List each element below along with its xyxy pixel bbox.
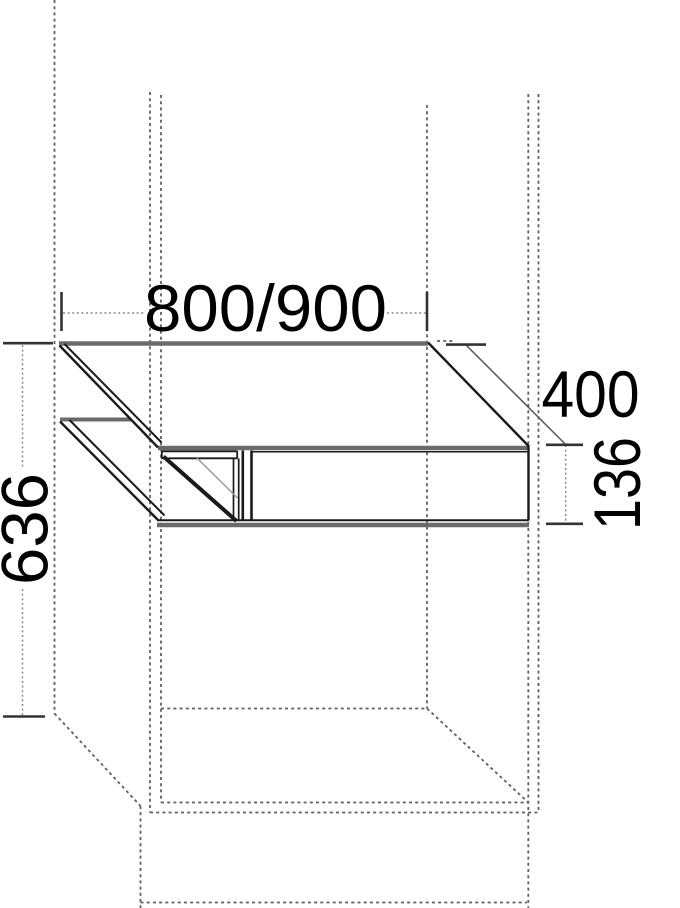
top-panel-left-edge-inner: [65, 344, 162, 443]
niche-dashed-outline: [55, 0, 539, 908]
niche-bottom-right-diagonal-dashed: [427, 709, 528, 803]
corner-bracket-diagonal: [164, 457, 237, 522]
front-height-dimension-label: 136: [580, 437, 654, 530]
top-panel-left-edge-outer: [60, 346, 159, 448]
left-rail-outer-diagonal: [60, 422, 158, 521]
wall-left-bottom-diagonal-dashed: [55, 714, 141, 807]
dimension-ticks: [3, 292, 583, 717]
shelf-dimension-drawing: 800/900 400 136 636: [0, 0, 680, 908]
shelf-unit-gray-edges: [59, 344, 529, 526]
shelf-unit-dark-lines: [60, 343, 530, 522]
dimension-lines: [23, 313, 566, 716]
depth-dimension-label: 400: [542, 357, 640, 431]
dimension-labels: 800/900 400 136 636: [0, 271, 654, 585]
width-dimension-label: 800/900: [144, 271, 387, 345]
niche-height-dimension-label: 636: [0, 473, 62, 585]
technical-drawing-canvas: 800/900 400 136 636: [0, 0, 680, 908]
